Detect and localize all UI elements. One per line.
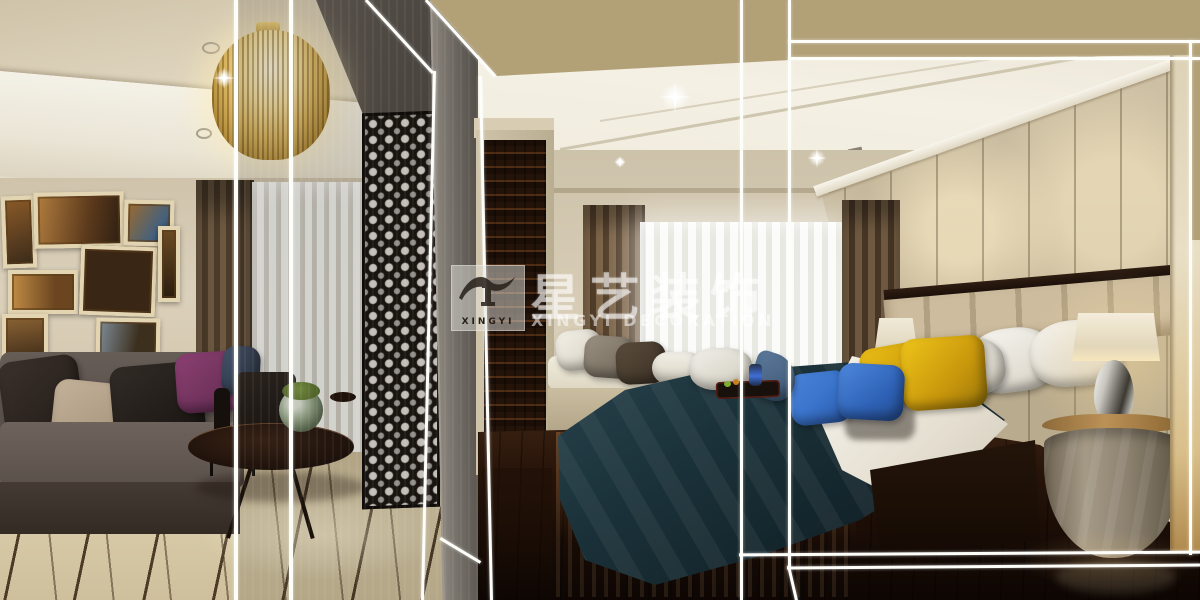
bed-pillow-yellow: [900, 334, 989, 412]
picture-frame: [158, 226, 180, 302]
frame-line-vertical: [234, 0, 238, 600]
sparkle-glint: [658, 80, 692, 114]
xingyi-logo-icon: [456, 268, 520, 310]
tan-banner-right-sliver: [1191, 54, 1200, 240]
blue-teapot: [749, 364, 762, 386]
picture-frame: [8, 270, 78, 314]
xingyi-logo-badge: XINGYI: [451, 265, 525, 331]
bed-pillow-blue: [837, 362, 906, 421]
frame-line-vertical: [289, 0, 293, 600]
sparkle-glint: [614, 156, 626, 168]
picture-frame: [79, 245, 157, 318]
sparkle-glint: [213, 67, 235, 89]
tray-fruit: [724, 381, 731, 387]
frame-line-vertical: [788, 0, 791, 568]
logo-label: XINGYI: [452, 317, 524, 327]
frame-line-vertical: [1189, 41, 1192, 555]
picture-frame: [1, 195, 37, 268]
watermark-english-text: XINGYI DECORATION: [531, 311, 775, 330]
picture-frame: [34, 191, 125, 249]
mirror-tint-overlay: [236, 0, 482, 600]
sparkle-glint: [807, 148, 827, 168]
frame-line-horizontal: [788, 40, 1200, 43]
interior-photo-canvas: XINGYI 星艺装饰 XINGYI DECORATION: [0, 0, 1200, 600]
frame-line-horizontal: [788, 57, 1200, 60]
right-lamp-shade: [1072, 313, 1160, 361]
tray-fruit: [733, 379, 739, 385]
